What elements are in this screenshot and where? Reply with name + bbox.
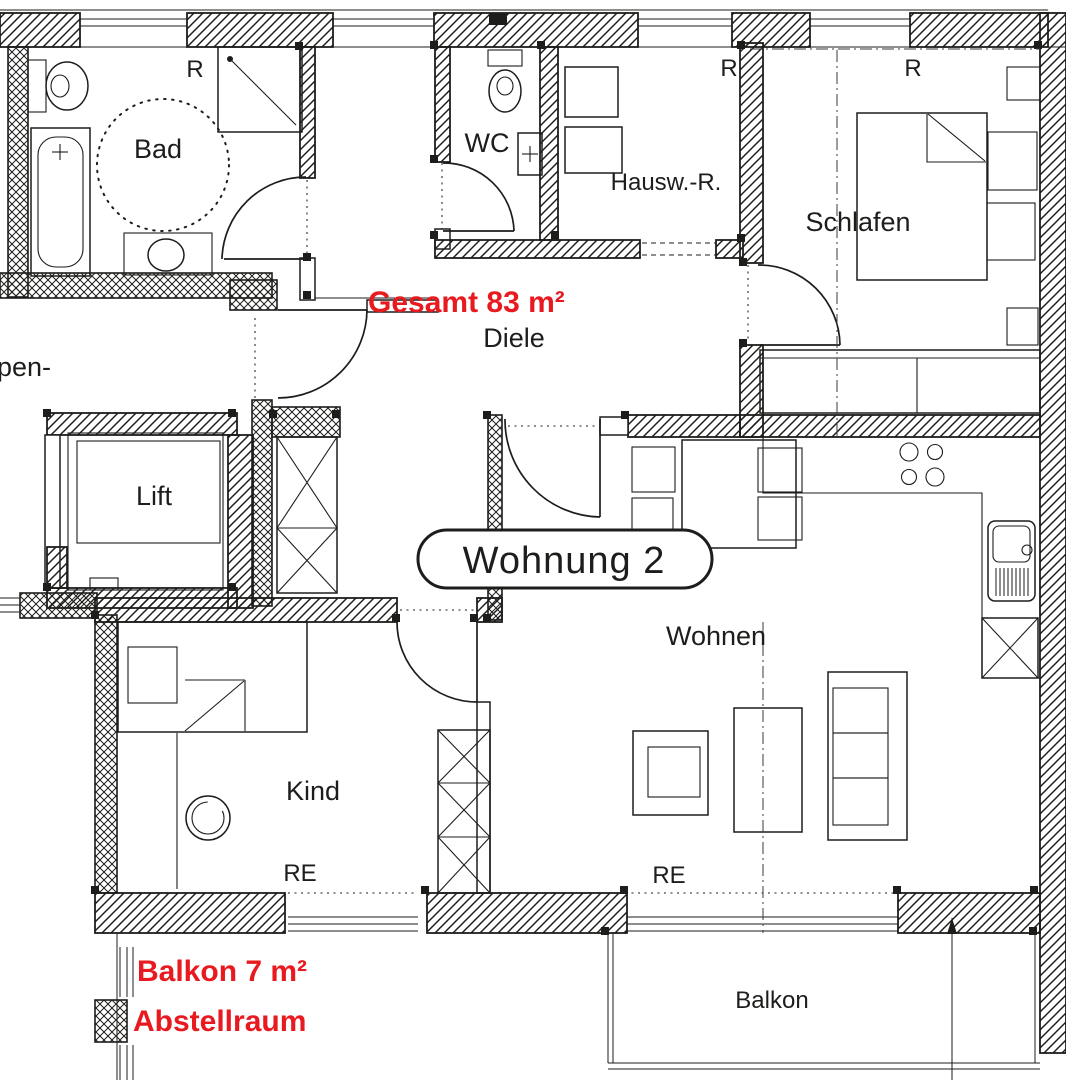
single-bed-icon xyxy=(118,622,307,732)
balcony-structure xyxy=(95,918,1040,1080)
coffee-table xyxy=(734,708,802,832)
hausw-fixtures xyxy=(565,67,622,173)
apartment-label: Wohnung 2 xyxy=(463,540,666,582)
window-top-schlafen xyxy=(810,19,910,26)
marker-r-bad: R xyxy=(186,56,203,83)
room-label-wc: WC xyxy=(465,128,510,158)
nightstand xyxy=(987,203,1035,260)
nightstand xyxy=(988,132,1037,190)
turning-circle xyxy=(97,99,229,231)
floorplan-drawing: Bad WC Hausw.-R. Schlafen Diele Lift Woh… xyxy=(0,0,1066,1080)
door-entrance xyxy=(278,310,367,398)
room-label-lift: Lift xyxy=(136,481,173,511)
armchair-icon xyxy=(633,731,708,815)
wc-toilet-icon xyxy=(488,50,522,112)
door-wc xyxy=(443,163,514,231)
storage-annotation: Abstellraum xyxy=(133,1005,306,1038)
window-top-niche xyxy=(333,19,434,26)
room-label-bad: Bad xyxy=(134,134,182,164)
door-wohnen xyxy=(505,419,600,517)
dining-table xyxy=(682,440,796,548)
balcony-area-annotation: Balkon 7 m² xyxy=(137,955,307,988)
lift-shaft xyxy=(68,433,223,590)
room-label-balkon: Balkon xyxy=(735,987,808,1014)
kind-furniture xyxy=(118,622,490,893)
room-label-kind: Kind xyxy=(286,776,340,806)
floorplan-page: Bad WC Hausw.-R. Schlafen Diele Lift Woh… xyxy=(0,0,1066,1080)
window-kind-balcony xyxy=(288,917,418,931)
hall-shelf xyxy=(277,437,337,593)
dishwasher-icon xyxy=(982,618,1038,678)
kitchen-counter xyxy=(763,437,1040,678)
window-top-bad xyxy=(80,19,187,26)
marker-r-schlafen: R xyxy=(904,55,921,82)
axis-lines xyxy=(750,49,1040,933)
stove-icon xyxy=(900,443,944,486)
sink-icon xyxy=(124,233,212,275)
marker-re-kind: RE xyxy=(283,860,316,887)
schlafen-furniture xyxy=(760,67,1040,413)
kitchen-fixtures xyxy=(763,437,1040,678)
appliance-dryer xyxy=(565,127,622,173)
marker-r-hausw: R xyxy=(720,55,737,82)
kitchen-sink-icon xyxy=(988,521,1035,601)
bathtub-icon xyxy=(31,128,90,276)
room-label-diele: Diele xyxy=(483,323,545,353)
window-top-hausw xyxy=(638,19,732,26)
chair xyxy=(632,447,675,492)
living-furniture xyxy=(633,672,907,840)
door-schlafen xyxy=(758,265,840,345)
wc-sink-icon xyxy=(518,133,542,175)
door-kind xyxy=(397,622,477,702)
section-line xyxy=(947,918,957,1080)
sofa-icon xyxy=(828,672,907,840)
stool-icon xyxy=(186,796,230,840)
appliance-washer xyxy=(565,67,618,117)
door-bad xyxy=(222,177,306,259)
wardrobe-icon xyxy=(760,350,1040,413)
nightstand xyxy=(1007,308,1038,345)
nightstand xyxy=(1007,67,1040,100)
hausw-door-opening xyxy=(642,243,716,255)
marker-re-wohnen: RE xyxy=(652,862,685,889)
toilet-icon xyxy=(28,60,88,112)
lift-fixtures xyxy=(68,433,223,590)
total-area-annotation: Gesamt 83 m² xyxy=(368,286,565,319)
stairwell-label-fragment: pen- xyxy=(0,352,51,382)
room-label-schlafen: Schlafen xyxy=(805,207,910,237)
double-bed-icon xyxy=(857,113,987,280)
chimney-mark xyxy=(489,13,507,25)
room-label-wohnen: Wohnen xyxy=(666,621,766,651)
balcony-rail xyxy=(608,933,1040,1069)
shower-icon xyxy=(218,47,302,132)
room-label-hausw: Hausw.-R. xyxy=(611,169,722,196)
